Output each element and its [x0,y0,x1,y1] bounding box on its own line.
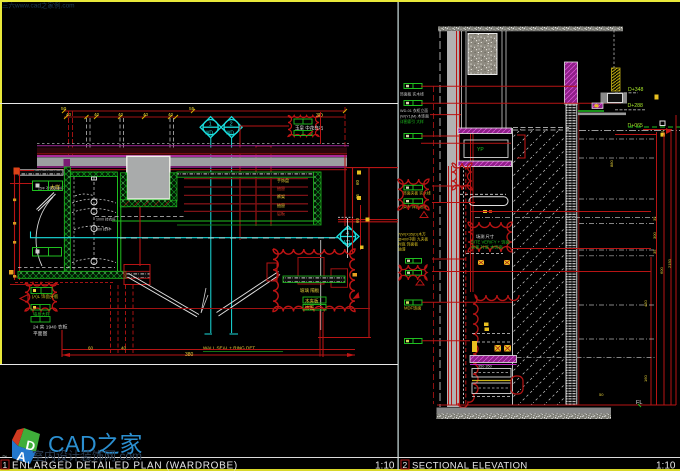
svg-text:60: 60 [355,217,360,223]
svg-text:1000 挂衣杆: 1000 挂衣杆 [96,217,116,222]
svg-text:WD: WD [226,131,235,137]
svg-text:350 350: 350 350 [478,365,492,369]
svg-text:三六www.cad之家例.com: 三六www.cad之家例.com [2,1,75,10]
svg-text:3D: 3D [316,113,323,119]
svg-text:MDF饰面: MDF饰面 [404,305,421,312]
svg-text:大样: 大样 [50,184,60,191]
svg-text:1: 1 [209,122,212,128]
svg-text:SECTIONAL ELEVATION: SECTIONAL ELEVATION [412,461,528,471]
svg-text:60: 60 [88,346,94,351]
svg-text:(A)L 饰面夹板: (A)L 饰面夹板 [32,293,59,300]
svg-text:饰面板 实木线: 饰面板 实木线 [400,92,424,97]
svg-text:抽屉: 抽屉 [277,202,285,208]
svg-text:油漆: 油漆 [398,247,406,252]
svg-text:300: 300 [652,232,657,239]
svg-text:35: 35 [652,249,657,254]
svg-text:800 挂杆: 800 挂杆 [96,227,111,232]
svg-text:玻璃 隔板: 玻璃 隔板 [300,287,320,294]
svg-text:50: 50 [599,392,604,397]
svg-text:详图索引 大样: 详图索引 大样 [400,119,424,124]
svg-text:(W)Y1(M) 木饰面: (W)Y1(M) 木饰面 [400,114,429,119]
svg-text:380: 380 [185,352,194,358]
svg-text:D+348: D+348 [628,87,644,93]
svg-text:600: 600 [659,267,664,274]
svg-text:ENLARGED DETAILED PLAN (WARDRO: ENLARGED DETAILED PLAN (WARDROBE) [12,461,238,471]
svg-text:WD: WD [342,240,351,246]
svg-text:饰面夹板 实木线: 饰面夹板 实木线 [403,191,431,196]
svg-text:裤架: 裤架 [277,193,285,199]
svg-text:WD-01 衣柜立面: WD-01 衣柜立面 [400,108,428,113]
svg-text:D+065: D+065 [628,123,644,129]
svg-text:WD: WD [205,131,214,137]
svg-text:55: 55 [189,106,195,112]
svg-text:2: 2 [403,460,408,470]
svg-text:880: 880 [609,160,614,167]
svg-text:160: 160 [643,375,648,382]
svg-text:手饰盘: 手饰盘 [277,177,289,183]
svg-text:@400中距 九夹板: @400中距 九夹板 [398,237,428,242]
svg-text:抽屉: 抽屉 [277,185,285,191]
svg-text:YP: YP [477,147,484,153]
svg-text:35: 35 [652,216,657,221]
svg-text:1:10: 1:10 [656,461,676,471]
svg-text:木夹板: 木夹板 [305,298,319,305]
svg-text:D+288: D+288 [628,103,644,109]
svg-text:衬底 饰面板: 衬底 饰面板 [398,242,418,247]
svg-text:1:10: 1:10 [375,461,395,471]
svg-text:450: 450 [643,300,648,307]
svg-text:40: 40 [94,112,100,117]
svg-text:层板: 层板 [277,210,285,216]
svg-text:60: 60 [355,179,360,185]
svg-text:40: 40 [143,112,149,117]
svg-text:40: 40 [66,112,72,117]
svg-text:40: 40 [118,112,124,117]
svg-text:7(W)X35(D)木方: 7(W)X35(D)木方 [398,232,426,237]
svg-text:平面图: 平面图 [33,331,48,337]
svg-text:40: 40 [121,346,127,351]
svg-text:2150: 2150 [667,258,672,268]
svg-text:夹板 衬底 木饰面: 夹板 衬底 木饰面 [471,244,503,251]
svg-text:35: 35 [660,130,665,135]
svg-text:1: 1 [3,460,8,470]
svg-text:24 夹 1940 衣柜: 24 夹 1940 衣柜 [33,324,68,331]
svg-text:2: 2 [230,122,233,128]
svg-text:40: 40 [168,112,174,117]
